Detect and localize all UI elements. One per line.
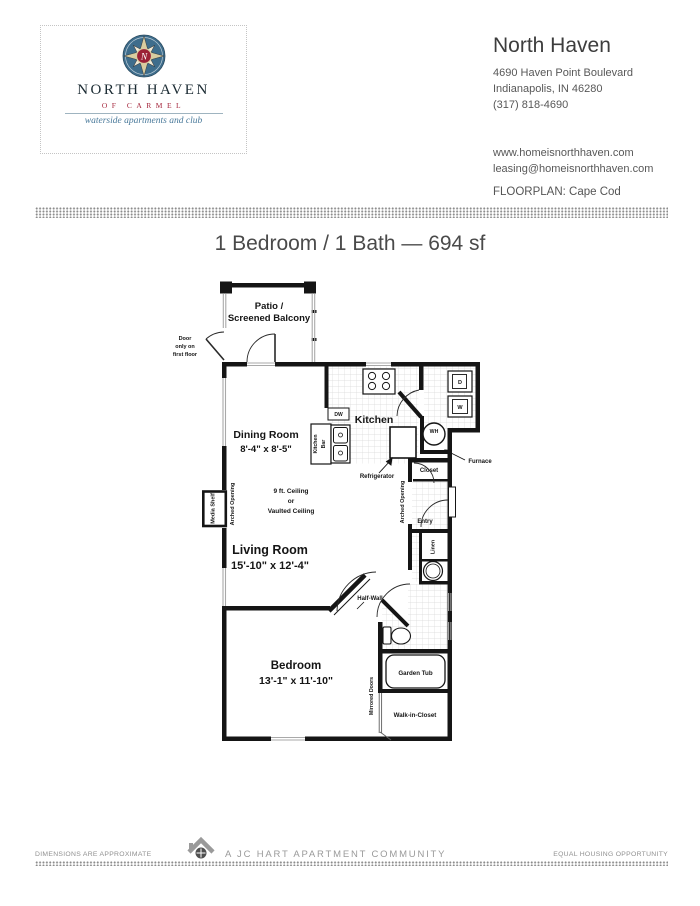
stove <box>363 369 395 394</box>
patio-slider-arc <box>247 334 275 362</box>
floorplan-label: FLOORPLAN: Cape Cod <box>493 186 621 198</box>
refrigerator-box <box>390 427 416 458</box>
footer-equal-housing: EQUAL HOUSING OPPORTUNITY <box>553 851 668 858</box>
email-address: leasing@homeisnorthhaven.com <box>493 161 653 177</box>
label-bedroom: Bedroom <box>271 660 321 672</box>
label-ceiling-2: or <box>288 498 295 505</box>
label-half-wall: Half-Wall <box>357 596 383 602</box>
dotted-divider-bottom <box>35 861 668 866</box>
label-dishwasher: DW <box>334 412 343 418</box>
label-dining-dim: 8'-4" x 8'-5" <box>240 444 292 455</box>
label-patio-line1: Patio / <box>255 301 284 312</box>
patio-door-arc <box>206 332 224 339</box>
compass-rose-icon: N <box>121 33 167 79</box>
logo-monogram: N <box>139 52 147 62</box>
label-bedroom-dim: 13'-1" x 11'-10" <box>259 675 333 687</box>
contact-block: North Haven 4690 Haven Point Boulevard I… <box>493 34 653 177</box>
floorplan-flyer-page: N NORTH HAVEN OF CARMEL waterside apartm… <box>0 0 700 906</box>
address-line2: Indianapolis, IN 46280 <box>493 81 653 97</box>
label-dining-room: Dining Room <box>233 429 298 441</box>
label-arched-opening-left: Arched Opening <box>230 483 236 526</box>
footer-disclaimer: DIMENSIONS ARE APPROXIMATE <box>35 851 151 858</box>
label-walk-in-closet: Walk-in-Closet <box>394 712 437 719</box>
label-refrigerator: Refrigerator <box>360 474 395 480</box>
logo-tagline: waterside apartments and club <box>41 116 246 126</box>
label-patio-line2: Screened Balcony <box>228 313 311 324</box>
label-furnace: Furnace <box>468 459 492 465</box>
label-arched-opening-right: Arched Opening <box>400 481 406 524</box>
mirrored-doors <box>379 693 391 740</box>
label-ceiling-3: Vaulted Ceiling <box>268 508 315 515</box>
footer-brand-text: A JC HART APARTMENT COMMUNITY <box>225 849 446 860</box>
logo-subtitle: OF CARMEL <box>41 101 246 110</box>
label-door-note-3: first floor <box>173 352 198 358</box>
phone-number: (317) 818-4690 <box>493 97 653 113</box>
label-kitchen-bar-2: Bar <box>321 440 327 449</box>
label-dryer: D <box>458 380 462 386</box>
label-door-note-2: only on <box>175 344 195 350</box>
label-ceiling-1: 9 ft. Ceiling <box>273 488 308 495</box>
label-kitchen: Kitchen <box>355 414 394 426</box>
label-water-heater: WH <box>430 429 439 435</box>
vanity-sink <box>424 562 443 581</box>
toilet <box>383 627 411 644</box>
logo-name: NORTH HAVEN <box>41 82 246 99</box>
house-icon <box>186 836 216 862</box>
logo-divider <box>65 113 223 114</box>
property-name: North Haven <box>493 34 653 58</box>
page-title: 1 Bedroom / 1 Bath — 694 sf <box>0 232 700 256</box>
label-living-room: Living Room <box>232 543 308 557</box>
label-garden-tub: Garden Tub <box>398 670 432 677</box>
label-closet: Closet <box>420 468 438 474</box>
label-entry: Entry <box>417 519 433 525</box>
half-wall <box>329 575 365 611</box>
bedroom-door-arc <box>337 572 376 611</box>
label-linen: Linen <box>431 540 437 554</box>
entry-door-leaf <box>449 487 456 517</box>
label-washer: W <box>457 405 463 411</box>
website-url: www.homeisnorthhaven.com <box>493 145 653 161</box>
dotted-divider-top <box>35 207 668 218</box>
label-media-shelf: Media Shelf <box>211 493 217 524</box>
footer-brand: A JC HART APARTMENT COMMUNITY <box>186 836 446 862</box>
label-living-dim: 15'-10" x 12'-4" <box>231 560 309 572</box>
address-line1: 4690 Haven Point Boulevard <box>493 65 653 81</box>
logo-card: N NORTH HAVEN OF CARMEL waterside apartm… <box>40 25 247 154</box>
label-kitchen-bar-1: Kitchen <box>313 434 319 453</box>
label-mirrored-doors: Mirrored Doors <box>369 677 375 715</box>
floor-plan-drawing: Patio / Screened Balcony Door only on fi… <box>158 266 503 751</box>
label-door-note-1: Door <box>179 336 193 342</box>
